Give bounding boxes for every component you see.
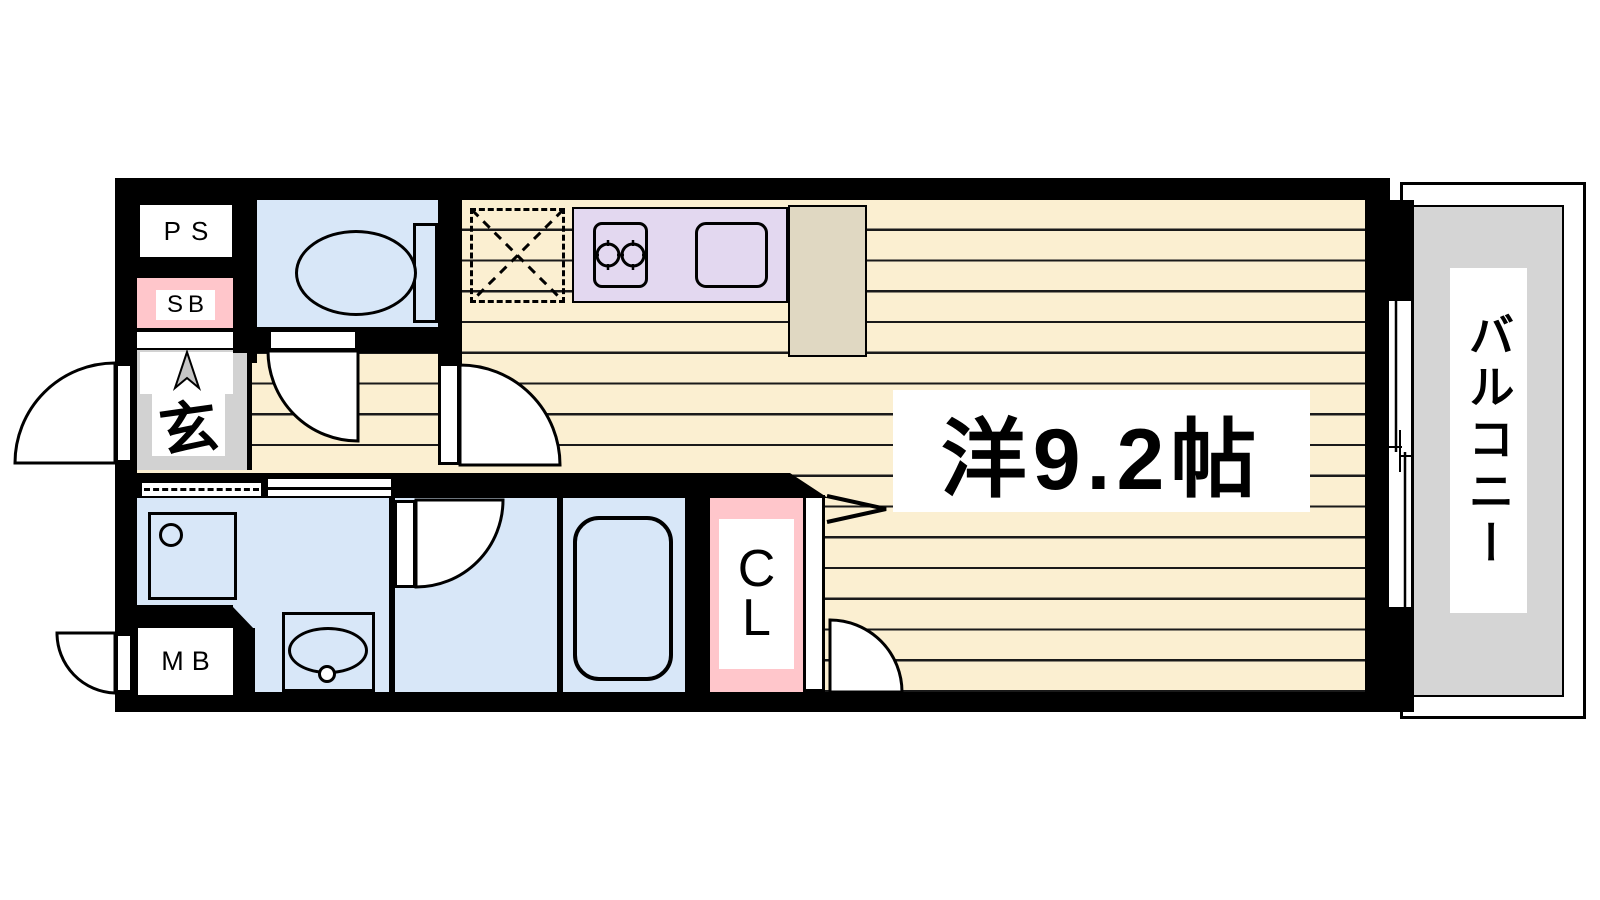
- bathroom-door-panel: [394, 500, 416, 588]
- entrance-door-panel: [115, 363, 133, 463]
- shaft-box-label: SB: [162, 291, 209, 319]
- pipe-space-label: PS: [154, 216, 219, 247]
- balcony-label-text: バルコニー: [1456, 311, 1522, 571]
- pipe-space-box: PS: [140, 205, 232, 257]
- entrance-label-box: 玄: [152, 392, 225, 456]
- balcony-label: バルコニー: [1450, 268, 1527, 613]
- window-top-cap: [1388, 200, 1414, 298]
- window-bottom-cap: [1388, 610, 1414, 712]
- washroom-accordion-door: [140, 481, 263, 498]
- closet-label-l: L: [742, 594, 771, 643]
- closet-label-box: C L: [719, 519, 794, 669]
- main-room-label-box: 洋9.2帖: [893, 390, 1310, 512]
- meter-box: MB: [138, 628, 233, 695]
- washing-machine-drain-icon: [159, 523, 183, 547]
- meter-box-door-panel: [115, 633, 133, 693]
- bathtub-divider: [557, 498, 563, 692]
- bathroom-closet-wall: [685, 473, 710, 692]
- main-room-label: 洋9.2帖: [941, 389, 1263, 514]
- meter-box-label: MB: [153, 646, 218, 677]
- sliding-door: [266, 477, 393, 498]
- sliding-window: [1386, 298, 1414, 610]
- closet-label-c: C: [738, 545, 776, 594]
- washing-machine-pan: [148, 512, 237, 600]
- refrigerator-space: [470, 208, 565, 303]
- kitchen-sink-icon: [695, 222, 768, 288]
- kitchen-cabinet: [788, 205, 867, 357]
- stove-icon: [593, 222, 648, 288]
- toilet-door-panel: [268, 329, 358, 351]
- vanity-drain-icon: [318, 665, 336, 683]
- floorplan-image: バルコニー PS SB 玄: [0, 0, 1600, 900]
- entrance-label: 玄: [154, 378, 223, 469]
- entrance-door-swing: [15, 363, 115, 463]
- shaft-box-inner: SB: [156, 290, 215, 320]
- kitchen-door-panel: [438, 363, 460, 465]
- bathtub-icon: [573, 516, 673, 681]
- entrance-hall-divider: [247, 350, 252, 470]
- toilet-bowl-icon: [295, 230, 417, 316]
- shoe-box: [137, 330, 233, 351]
- closet-door-panel: [803, 495, 825, 692]
- meter-box-wall-2: [233, 628, 255, 712]
- meter-box-door-swing: [57, 633, 115, 693]
